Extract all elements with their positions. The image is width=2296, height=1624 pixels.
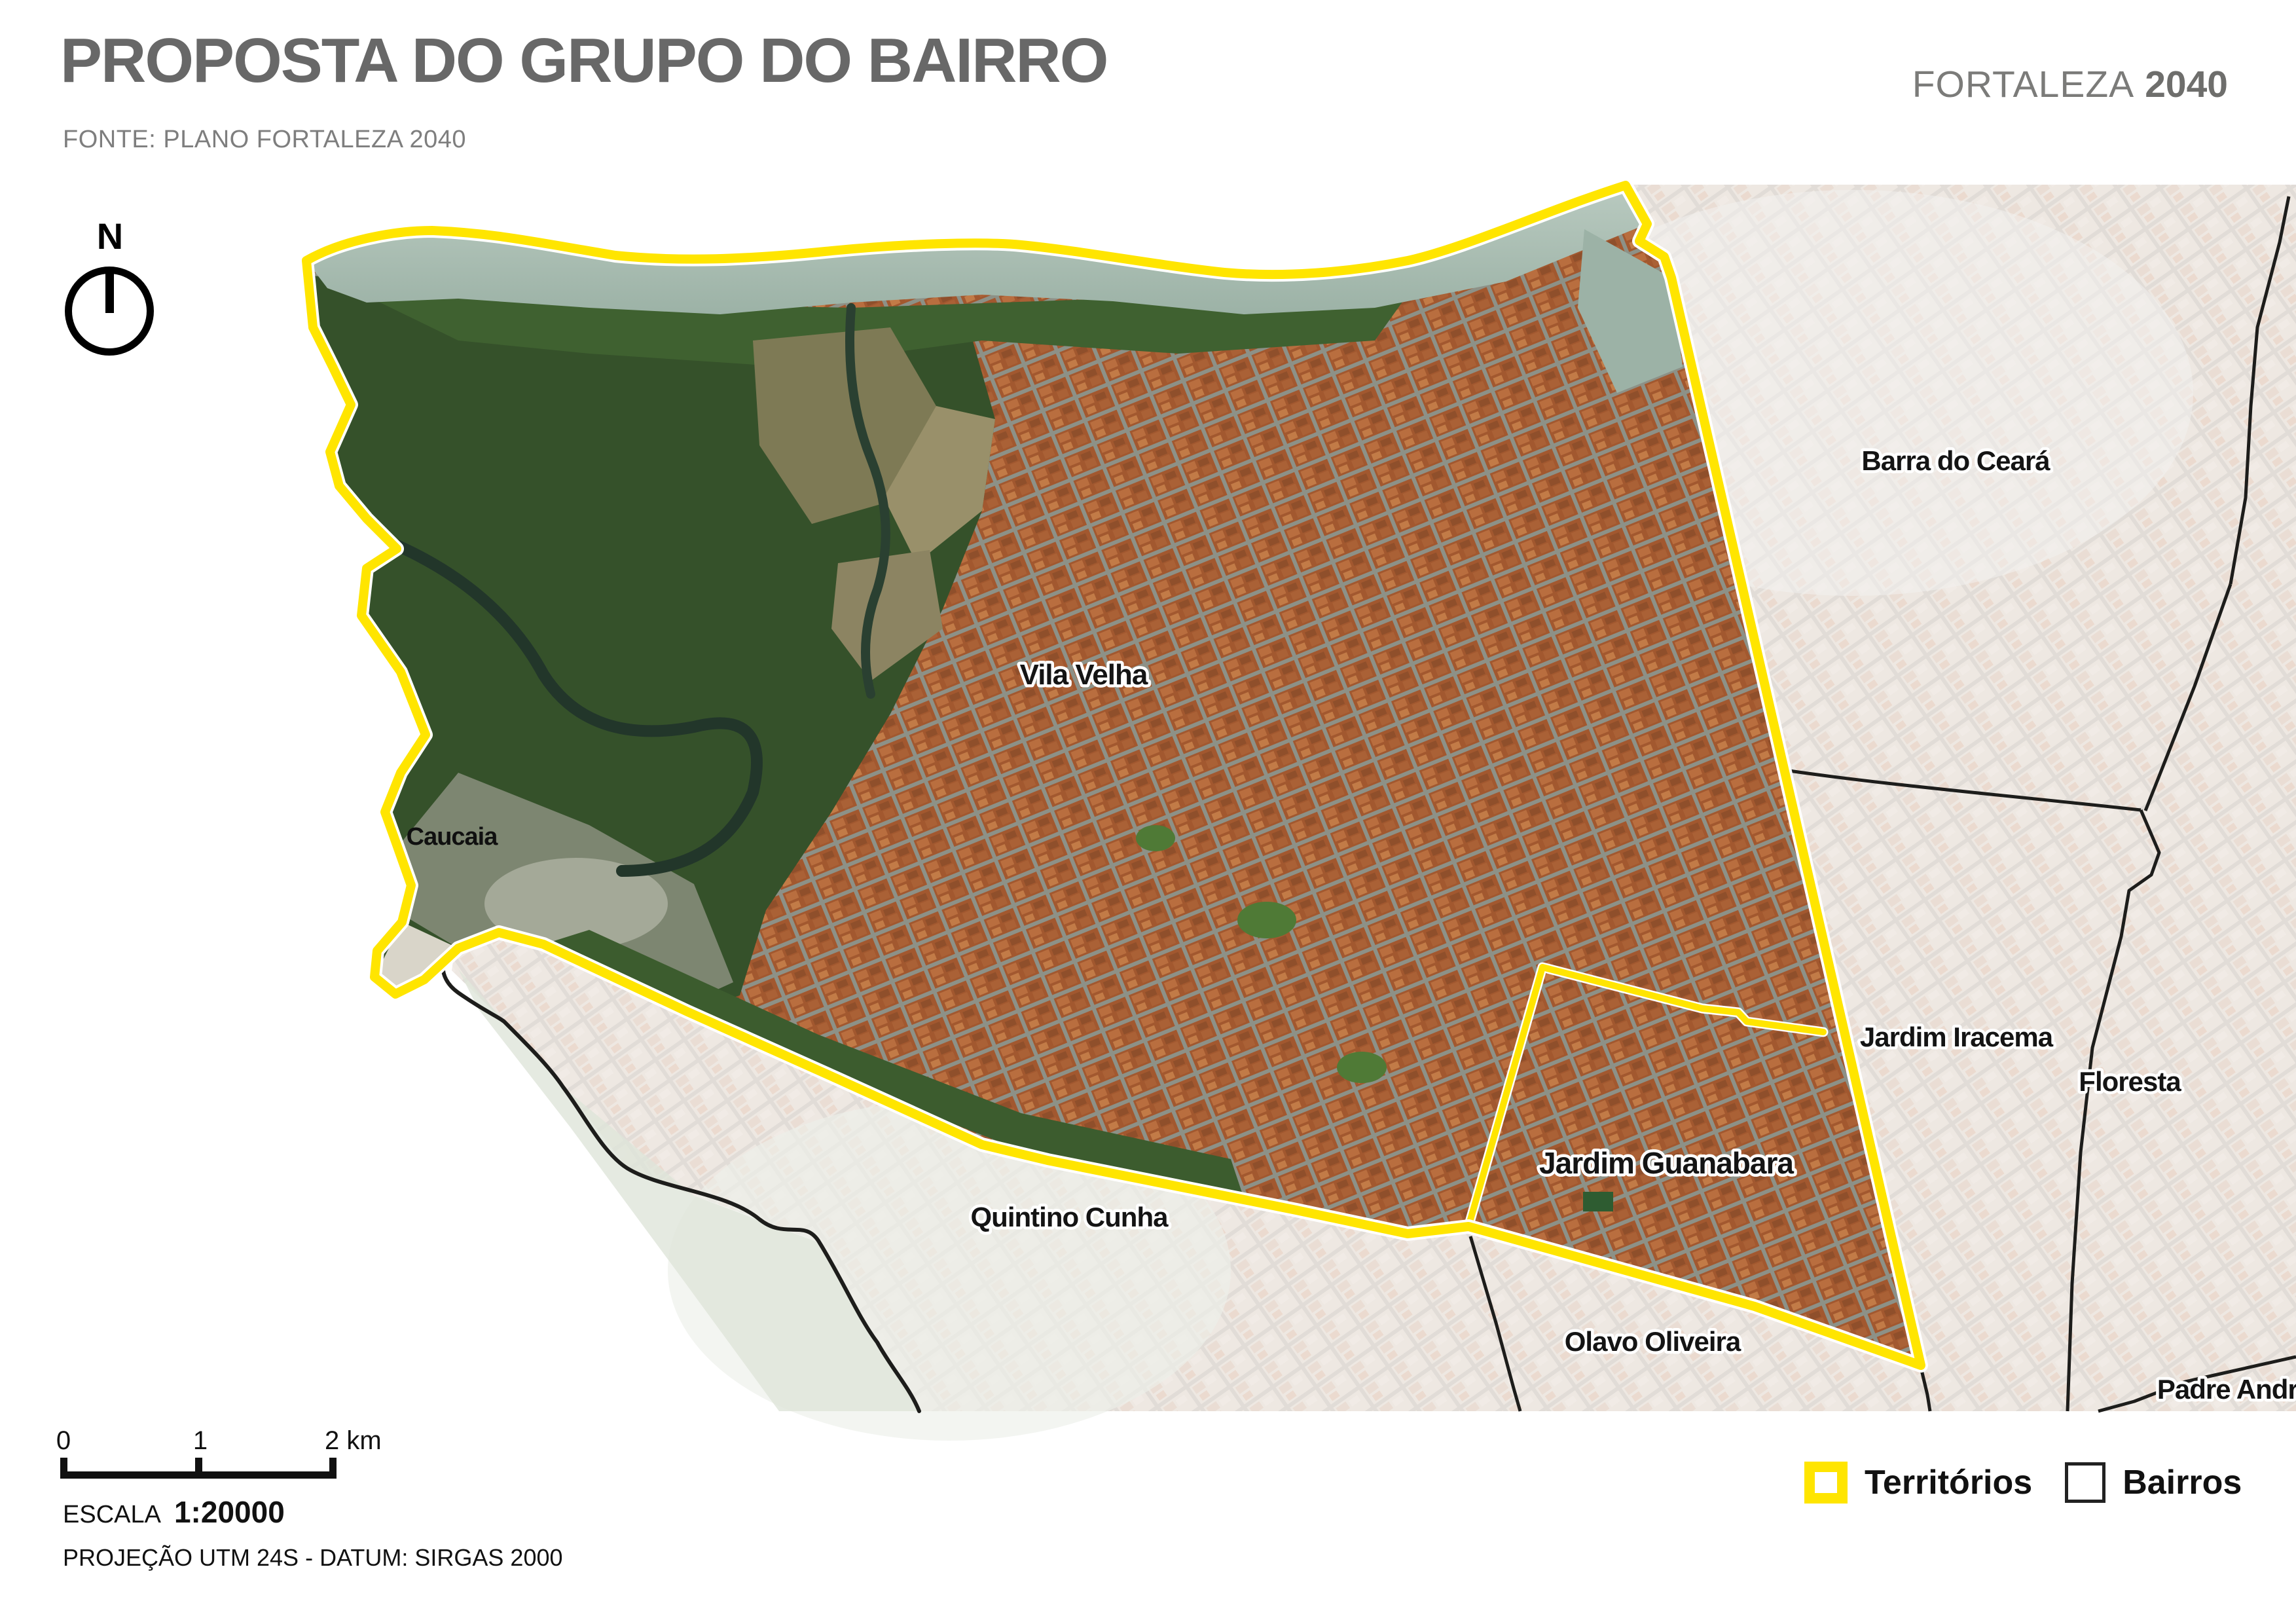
map-label-caucaia: Caucaia <box>407 823 499 851</box>
page-source: FONTE: PLANO FORTALEZA 2040 <box>63 126 466 154</box>
page-title: PROPOSTA DO GRUPO DO BAIRRO <box>60 25 1107 97</box>
scalebar-tickmark-1 <box>195 1458 202 1479</box>
escala-value: 1:20000 <box>174 1494 285 1530</box>
map-poster-page: Vila Velha Caucaia Barra do Ceará Jardim… <box>0 0 2296 1624</box>
bairros-label: Bairros <box>2123 1463 2242 1502</box>
north-arrow-needle <box>105 270 114 313</box>
brand-year: 2040 <box>2145 64 2228 105</box>
scalebar-tickmark-2 <box>329 1458 337 1479</box>
brand-logo: FORTALEZA2040 <box>1912 63 2228 106</box>
north-label: N <box>65 215 155 257</box>
map-label-jardim-iracema: Jardim Iracema <box>1860 1022 2054 1052</box>
map-canvas: Vila Velha Caucaia Barra do Ceará Jardim… <box>0 0 2296 1624</box>
scalebar-tickmark-0 <box>60 1458 67 1479</box>
map-label-olavo-oliveira: Olavo Oliveira <box>1565 1326 1741 1357</box>
scalebar-tick-1: 1 <box>181 1426 220 1456</box>
bairros-swatch <box>2065 1462 2105 1503</box>
projection-note: PROJEÇÃO UTM 24S - DATUM: SIRGAS 2000 <box>63 1544 563 1572</box>
map-label-padre-andrade: Padre Andrade <box>2157 1374 2296 1405</box>
map-label-floresta: Floresta <box>2079 1066 2181 1097</box>
escala-row: ESCALA 1:20000 <box>63 1494 285 1530</box>
map-label-vila-velha: Vila Velha <box>1020 659 1148 691</box>
scalebar-tick-2: 2 km <box>325 1426 382 1456</box>
territorios-swatch <box>1804 1462 1848 1504</box>
scalebar-tick-0: 0 <box>44 1426 83 1456</box>
escala-label: ESCALA <box>63 1501 161 1529</box>
map-label-jardim-guanabara: Jardim Guanabara <box>1539 1146 1794 1180</box>
legend: Territórios Bairros <box>1804 1462 2242 1504</box>
brand-name: FORTALEZA <box>1912 64 2134 105</box>
territorios-label: Territórios <box>1865 1463 2032 1502</box>
map-label-barra-do-ceara: Barra do Ceará <box>1861 445 2050 476</box>
map-label-quintino-cunha: Quintino Cunha <box>971 1202 1169 1232</box>
